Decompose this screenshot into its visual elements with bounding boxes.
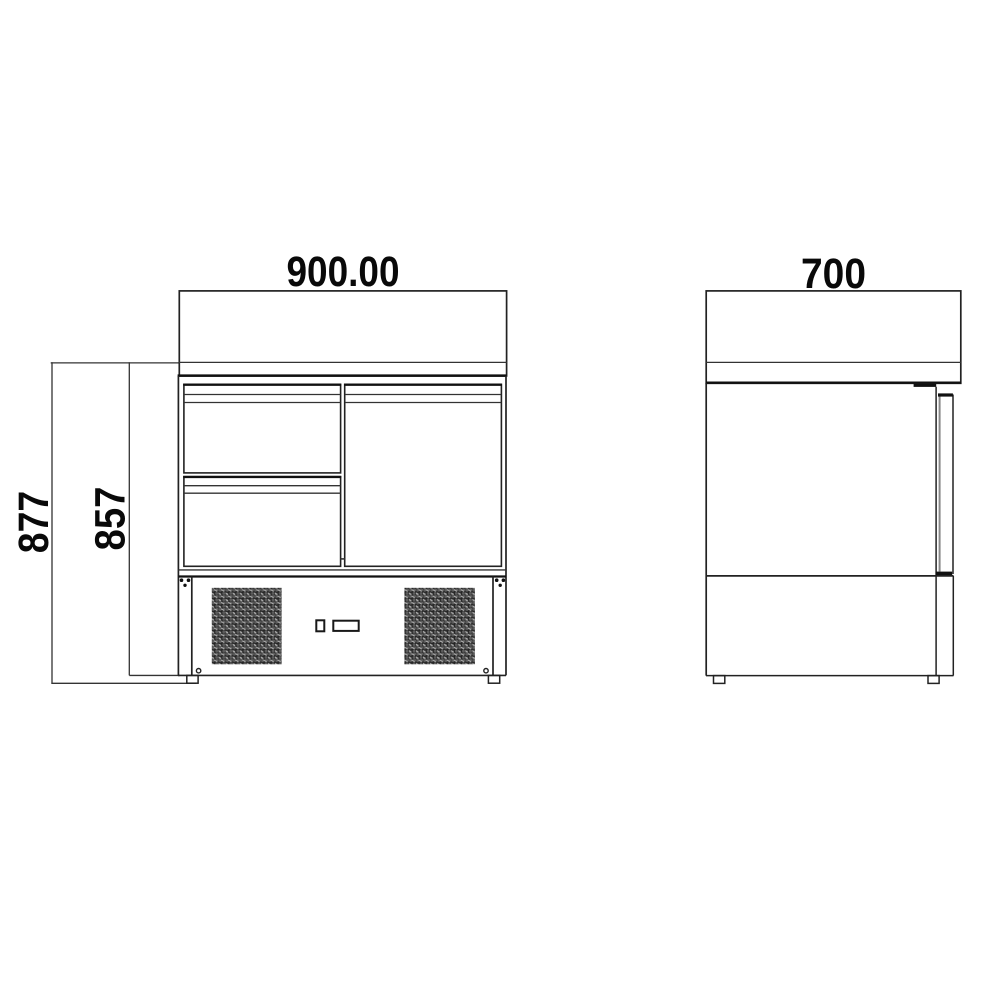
svg-text:900.00: 900.00 [287,249,400,296]
svg-text:857: 857 [88,487,135,551]
svg-text:877: 877 [11,491,58,554]
